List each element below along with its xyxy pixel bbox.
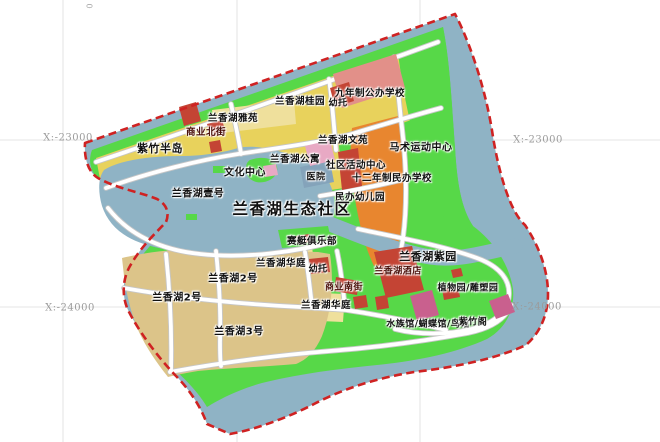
label-community-title: 兰香湖生态社区 [232,197,351,219]
label-huating-lower: 兰香湖华庭 [301,297,351,311]
label-lake-no2-b: 兰香湖2号 [152,289,201,304]
planning-map-image: X:-23000 X:-23000 X:-24000 X:-24000 0 紫竹… [0,0,660,442]
label-ziyuan: 兰香湖紫园 [399,248,457,264]
label-public-school: 九年制公办学校 [335,85,405,99]
label-aquarium: 水族馆/蝴蝶馆/鸟馆 [386,317,470,330]
label-yayuan: 兰香湖雅苑 [208,110,258,124]
label-hospital: 医院 [306,170,325,183]
label-south-commercial-street: 商业南街 [325,280,363,293]
label-botanical-garden: 植物园/雕塑园 [438,281,499,294]
label-rowing-club: 赛艇俱乐部 [287,233,337,247]
label-zizhu-pavilion: 紫竹阁 [459,315,488,328]
label-nursery-mid: 幼托 [308,262,327,275]
label-guiyuan: 兰香湖桂园 [275,93,325,107]
label-north-commercial-street: 商业北街 [186,124,226,138]
coord-label-x23000-left: X:-23000 [43,133,93,144]
label-private-school: 十二年制民办学校 [352,170,432,184]
label-culture-center: 文化中心 [224,164,266,179]
label-lake-no2-a: 兰香湖2号 [208,270,257,285]
corner-grid-mark: 0 [85,3,94,8]
coord-label-x24000-right: X:-24000 [512,302,562,313]
label-wenyuan: 兰香湖文苑 [318,132,368,146]
label-apartments: 兰香湖公寓 [270,151,320,165]
map-drawing [0,0,660,442]
label-huating-upper: 兰香湖华庭 [256,255,306,269]
label-community-center: 社区活动中心 [326,157,386,171]
label-lake-no3: 兰香湖3号 [214,323,263,338]
coord-label-x24000-left: X:-24000 [45,303,95,314]
coord-label-x23000-right: X:-23000 [513,135,563,146]
label-equestrian-center: 马术运动中心 [390,139,453,154]
label-lake-no1: 兰香湖壹号 [172,185,225,200]
label-hotel: 兰香湖酒店 [374,264,422,277]
label-zizhu-peninsula: 紫竹半岛 [137,140,183,156]
